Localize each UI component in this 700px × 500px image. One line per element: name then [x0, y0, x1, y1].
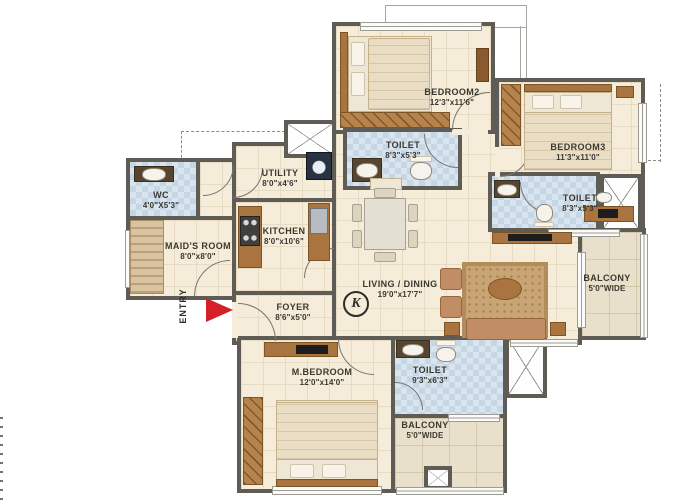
label-foyer: FOYER 8'6"x5'0" — [275, 302, 310, 322]
pillow-bedroom3-a — [532, 95, 554, 109]
wardrobe-master — [243, 397, 263, 485]
label-balcony-bottom: BALCONY 5'0"WIDE — [401, 420, 448, 440]
label-living-dining: LIVING / DINING 19'0"x17'7" — [362, 279, 437, 299]
entry-arrow-icon — [206, 298, 233, 322]
railing-balcony-right — [640, 234, 648, 338]
dining-chair-right-b — [408, 230, 418, 248]
toilet-right-wc-tank — [534, 222, 554, 227]
headboard-bedroom2 — [340, 32, 348, 116]
pillow-bedroom3-b — [560, 95, 582, 109]
label-toilet-master: TOILET 9'3"x6'3" — [412, 365, 447, 385]
label-bedroom3: BEDROOM3 11'3"x11'0" — [550, 142, 605, 162]
wardrobe-bedroom2 — [340, 112, 450, 128]
label-toilet-right: TOILET 8'3"x5'3" — [562, 193, 597, 213]
dining-chair-left-a — [352, 204, 362, 222]
floor-plan: BEDROOM2 12'3"x11'6" BEDROOM3 11'3"x11'0… — [0, 0, 700, 500]
terrace-outline-side — [520, 26, 527, 78]
window-master-bedroom — [272, 486, 382, 495]
toilet-top-basin — [356, 163, 378, 178]
dining-chair-bottom — [374, 252, 396, 262]
dining-chair-right-a — [408, 204, 418, 222]
kitchen-sink — [310, 208, 328, 234]
label-kitchen: KITCHEN 8'0"x10'6" — [263, 226, 306, 246]
dining-chair-left-b — [352, 230, 362, 248]
label-bedroom2: BEDROOM2 12'3"x11'6" — [424, 87, 479, 107]
stool-bedroom3 — [596, 192, 612, 203]
label-toilet-top: TOILET 8'3"x5'3" — [385, 140, 420, 160]
tv-master — [296, 345, 328, 354]
duvet-bedroom2 — [368, 38, 430, 110]
side-table-living-a — [444, 322, 460, 336]
toilet-right-basin — [497, 184, 517, 196]
headboard-bedroom3 — [524, 84, 612, 92]
edge-artifact — [0, 415, 3, 500]
side-table-living-b — [550, 322, 566, 336]
window-bedroom3 — [638, 103, 647, 163]
toilet-top-wc — [410, 162, 432, 180]
pillow-master-a — [290, 464, 314, 478]
window-bedroom2 — [360, 22, 482, 31]
dashed-ledge-top-left — [181, 131, 285, 132]
toilet-right-wc — [536, 204, 553, 222]
sofa-three-seater — [466, 318, 546, 340]
label-maids-room: MAID'S ROOM 8'0"x8'0" — [165, 241, 231, 261]
toilet-master-wc-tank — [436, 340, 456, 346]
pillow-bedroom2-b — [351, 72, 365, 96]
slider-toilet-balcony — [448, 414, 500, 422]
label-master-bedroom: M.BEDROOM 12'0"x14'0" — [292, 367, 353, 387]
dashed-ledge-right — [660, 84, 661, 162]
dining-table — [364, 198, 406, 250]
dresser-bedroom2 — [476, 48, 489, 82]
label-wc: WC 4'0"X5'3" — [143, 190, 179, 210]
wc-basin — [142, 168, 166, 181]
toilet-master-wc — [436, 347, 456, 362]
headboard-master — [276, 479, 378, 487]
tv — [508, 234, 552, 241]
toilet-master-basin — [402, 344, 424, 356]
wardrobe-bedroom3 — [501, 84, 521, 146]
key-marker: K — [343, 291, 369, 317]
sofa-single-b — [440, 296, 462, 318]
bed-maids-room — [130, 220, 164, 294]
label-utility: UTILITY 8'0"x4'6" — [262, 168, 299, 188]
dining-chair-top — [374, 188, 396, 198]
label-balcony-right: BALCONY 5'0"WIDE — [583, 273, 630, 293]
side-table-bedroom3 — [616, 86, 634, 98]
entry-label: ENTRY — [178, 288, 188, 323]
duvet-master — [276, 402, 378, 460]
laptop-bedroom3 — [598, 209, 618, 218]
key-marker-letter: K — [351, 296, 360, 312]
washing-machine — [306, 152, 332, 180]
railing-balcony-bottom — [396, 487, 504, 495]
stove — [240, 216, 260, 246]
shaft-x-box-right — [600, 174, 642, 232]
coffee-table — [488, 278, 522, 300]
pillow-bedroom2-a — [351, 42, 365, 66]
pillow-master-b — [322, 464, 346, 478]
window-living — [510, 339, 578, 347]
sofa-single-a — [440, 268, 462, 290]
